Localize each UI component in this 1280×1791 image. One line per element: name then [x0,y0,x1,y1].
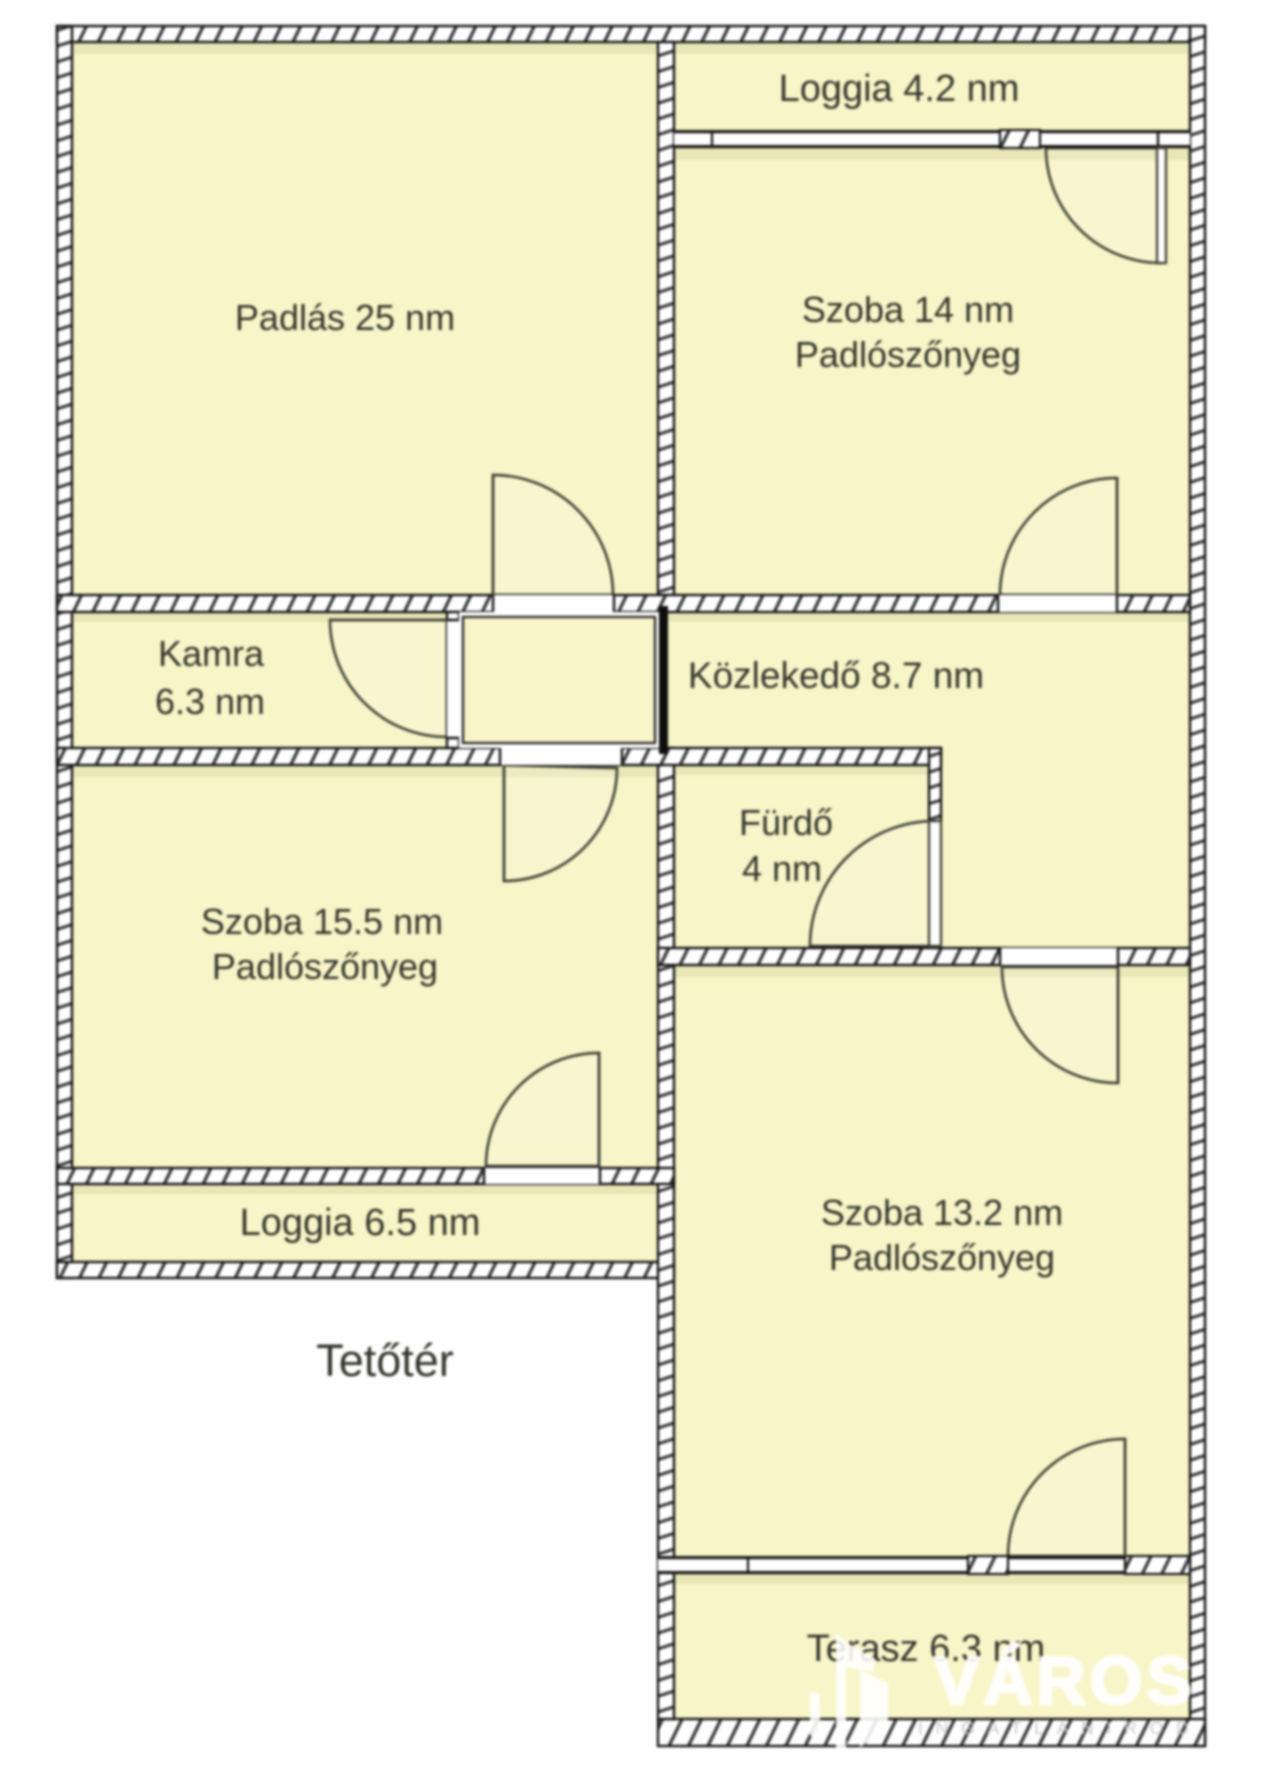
svg-text:Szoba 15.5 nm: Szoba 15.5 nm [201,901,443,942]
svg-text:Padlószőnyeg: Padlószőnyeg [795,334,1021,375]
svg-text:Szoba 14 nm: Szoba 14 nm [802,289,1014,330]
svg-text:6.3 nm: 6.3 nm [155,681,265,722]
svg-text:INGATLANIROD: INGATLANIROD [918,1718,1202,1738]
svg-text:4 nm: 4 nm [742,848,822,889]
svg-text:VÁROS: VÁROS [934,1643,1196,1719]
svg-text:Tetőtér: Tetőtér [316,1335,454,1386]
svg-text:Padlószőnyeg: Padlószőnyeg [212,946,438,987]
svg-text:Padlószőnyeg: Padlószőnyeg [829,1237,1055,1278]
svg-text:Kamra: Kamra [158,633,265,674]
svg-text:Fürdő: Fürdő [739,802,833,843]
svg-text:Loggia 6.5 nm: Loggia 6.5 nm [240,1202,481,1244]
svg-text:Szoba 13.2 nm: Szoba 13.2 nm [821,1192,1063,1233]
svg-text:Padlás 25 nm: Padlás 25 nm [235,297,455,338]
svg-text:Közlekedő 8.7 nm: Közlekedő 8.7 nm [688,655,984,696]
svg-text:Loggia 4.2 nm: Loggia 4.2 nm [779,68,1020,110]
